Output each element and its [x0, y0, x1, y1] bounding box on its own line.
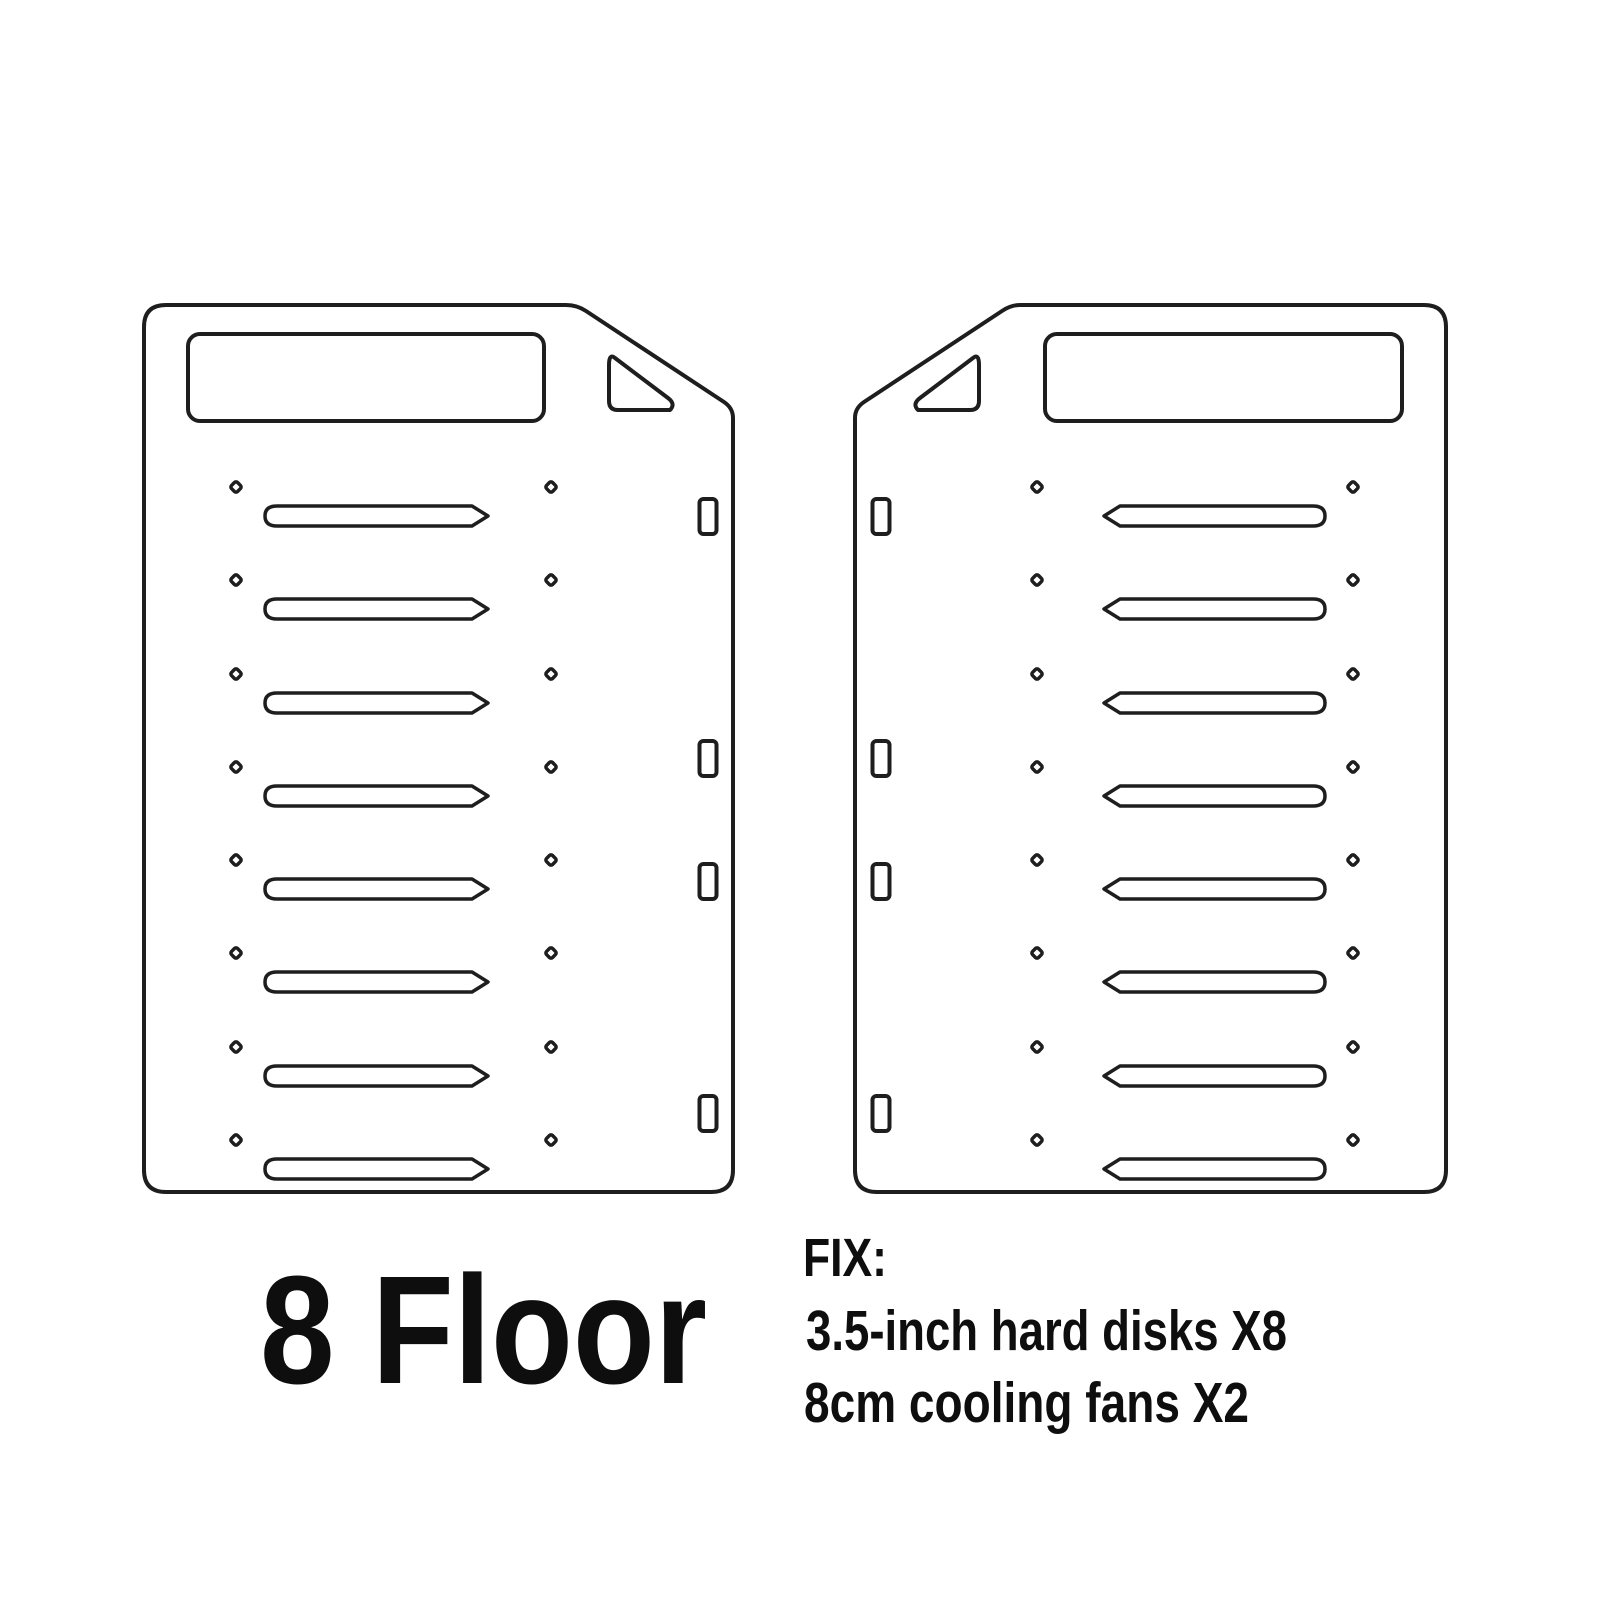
svg-text:8cm cooling fans X2: 8cm cooling fans X2	[804, 1371, 1249, 1435]
svg-text:3.5-inch hard disks X8: 3.5-inch hard disks X8	[806, 1299, 1287, 1363]
svg-text:8 Floor: 8 Floor	[260, 1244, 707, 1416]
svg-text:FIX:: FIX:	[803, 1228, 887, 1288]
